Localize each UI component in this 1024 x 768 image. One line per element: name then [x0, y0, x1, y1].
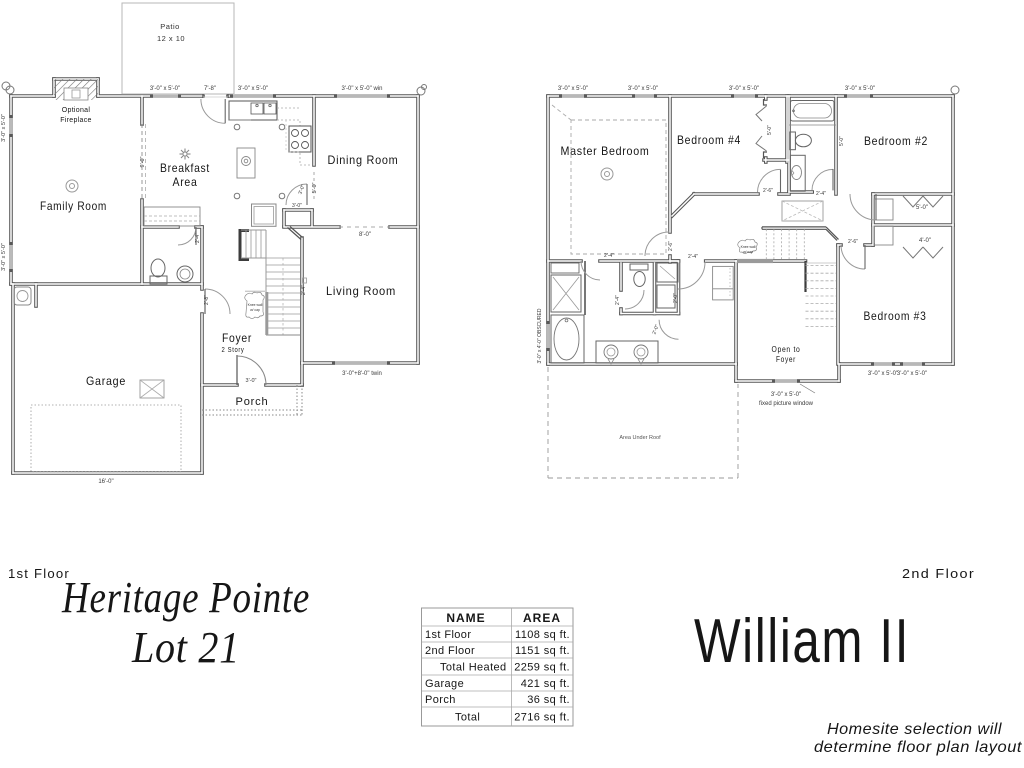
- svg-text:Dining Room: Dining Room: [328, 153, 399, 167]
- svg-text:Garage: Garage: [425, 678, 464, 690]
- svg-text:2'-0": 2'-0": [673, 293, 679, 303]
- svg-text:2 Story: 2 Story: [222, 345, 245, 354]
- svg-text:Family Room: Family Room: [40, 199, 107, 213]
- svg-text:3'-0" x 5'-0": 3'-0" x 5'-0": [897, 371, 927, 377]
- svg-text:5'-0": 5'-0": [916, 205, 928, 211]
- svg-text:12 x 10: 12 x 10: [157, 34, 185, 43]
- svg-text:Lot 21: Lot 21: [131, 623, 240, 672]
- svg-text:Homesite selection will: Homesite selection will: [827, 721, 1002, 738]
- svg-text:3'-0" x 5'-0": 3'-0" x 5'-0": [771, 392, 801, 398]
- svg-text:2'-4": 2'-4": [604, 253, 614, 259]
- svg-text:fixed picture window: fixed picture window: [759, 401, 814, 407]
- svg-text:3'-0" x 5'-0": 3'-0" x 5'-0": [845, 86, 875, 92]
- svg-text:Garage: Garage: [86, 374, 126, 388]
- svg-text:Master Bedroom: Master Bedroom: [561, 144, 650, 158]
- svg-text:3'-0" x 5'-0": 3'-0" x 5'-0": [729, 86, 759, 92]
- svg-text:Patio: Patio: [160, 22, 180, 31]
- svg-text:Area Under Roof: Area Under Roof: [619, 435, 661, 441]
- svg-text:Open to: Open to: [772, 345, 801, 354]
- svg-text:1st Floor: 1st Floor: [425, 629, 471, 641]
- svg-text:2'-8": 2'-8": [204, 295, 210, 305]
- svg-text:2'-4": 2'-4": [195, 233, 201, 243]
- svg-text:Total Heated: Total Heated: [440, 662, 507, 674]
- svg-text:5'-0": 5'-0": [839, 136, 845, 146]
- svg-text:2'-6": 2'-6": [668, 241, 674, 251]
- svg-text:w/ cap: w/ cap: [743, 250, 753, 254]
- svg-text:3'-0" x 5'-0": 3'-0" x 5'-0": [1, 114, 7, 142]
- svg-text:3'-0": 3'-0": [246, 378, 257, 384]
- svg-text:Breakfast: Breakfast: [160, 161, 210, 175]
- svg-text:AREA: AREA: [523, 611, 561, 625]
- svg-text:Foyer: Foyer: [222, 331, 252, 345]
- svg-text:Knee wall: Knee wall: [248, 303, 263, 307]
- svg-text:Porch: Porch: [425, 694, 456, 706]
- svg-text:2'-4": 2'-4": [816, 191, 826, 197]
- svg-text:9'-0": 9'-0": [140, 156, 146, 167]
- svg-text:5'-0": 5'-0": [312, 182, 318, 193]
- svg-text:2nd Floor: 2nd Floor: [425, 645, 475, 657]
- svg-text:Total: Total: [455, 712, 480, 724]
- svg-text:16'-0": 16'-0": [98, 479, 113, 485]
- svg-text:2716 sq ft.: 2716 sq ft.: [514, 712, 570, 724]
- svg-text:Optional: Optional: [62, 107, 91, 114]
- svg-text:3'-0" x 5'-0": 3'-0" x 5'-0": [1, 243, 7, 271]
- svg-text:1108 sq ft.: 1108 sq ft.: [515, 629, 570, 641]
- svg-text:3'-0" x 5'-0": 3'-0" x 5'-0": [150, 86, 180, 92]
- svg-text:2'-4": 2'-4": [301, 285, 307, 295]
- svg-text:2'-4": 2'-4": [615, 295, 621, 305]
- svg-text:w/ cap: w/ cap: [250, 308, 260, 312]
- svg-text:Knee wall: Knee wall: [741, 245, 756, 249]
- svg-text:3'-0" x 5'-0" win: 3'-0" x 5'-0" win: [342, 86, 383, 92]
- svg-text:5'-0": 5'-0": [767, 125, 773, 135]
- svg-text:421 sq ft.: 421 sq ft.: [521, 678, 570, 690]
- svg-text:Bedroom #4: Bedroom #4: [677, 133, 741, 147]
- svg-text:36 sq ft.: 36 sq ft.: [527, 694, 570, 706]
- svg-text:7'-8": 7'-8": [204, 86, 216, 92]
- svg-text:2'-6": 2'-6": [848, 239, 858, 245]
- svg-text:2259 sq ft.: 2259 sq ft.: [514, 662, 570, 674]
- svg-text:3'-0": 3'-0": [292, 203, 302, 209]
- svg-text:Bedroom #2: Bedroom #2: [864, 134, 928, 148]
- svg-text:Fireplace: Fireplace: [60, 117, 92, 124]
- svg-text:2nd Floor: 2nd Floor: [902, 566, 975, 581]
- svg-text:Heritage Pointe: Heritage Pointe: [61, 573, 310, 622]
- svg-text:Foyer: Foyer: [776, 355, 796, 364]
- svg-text:3'-0" x 5'-0": 3'-0" x 5'-0": [868, 371, 898, 377]
- svg-text:1st Floor: 1st Floor: [8, 566, 70, 581]
- svg-text:Living Room: Living Room: [326, 284, 396, 298]
- svg-text:Area: Area: [173, 175, 198, 189]
- svg-text:determine floor plan layout: determine floor plan layout: [814, 739, 1022, 756]
- svg-text:Bedroom #3: Bedroom #3: [864, 309, 927, 323]
- svg-text:4'-0": 4'-0": [919, 238, 931, 244]
- svg-text:8'-0": 8'-0": [359, 232, 371, 238]
- svg-text:3'-0"+8'-0" twin: 3'-0"+8'-0" twin: [342, 371, 382, 377]
- svg-text:Porch: Porch: [236, 396, 269, 408]
- svg-text:1151 sq ft.: 1151 sq ft.: [515, 645, 570, 657]
- svg-text:William II: William II: [694, 607, 910, 676]
- svg-text:3'-0" x 5'-0": 3'-0" x 5'-0": [558, 86, 588, 92]
- svg-text:2'-4": 2'-4": [688, 254, 698, 260]
- svg-text:3'-0" x 5'-0": 3'-0" x 5'-0": [628, 86, 658, 92]
- svg-text:NAME: NAME: [446, 611, 485, 625]
- svg-text:2'-6": 2'-6": [763, 188, 773, 194]
- svg-text:3'-0" x 4'-0" OBSCURED: 3'-0" x 4'-0" OBSCURED: [537, 308, 543, 363]
- svg-text:3'-0" x 5'-0": 3'-0" x 5'-0": [238, 86, 268, 92]
